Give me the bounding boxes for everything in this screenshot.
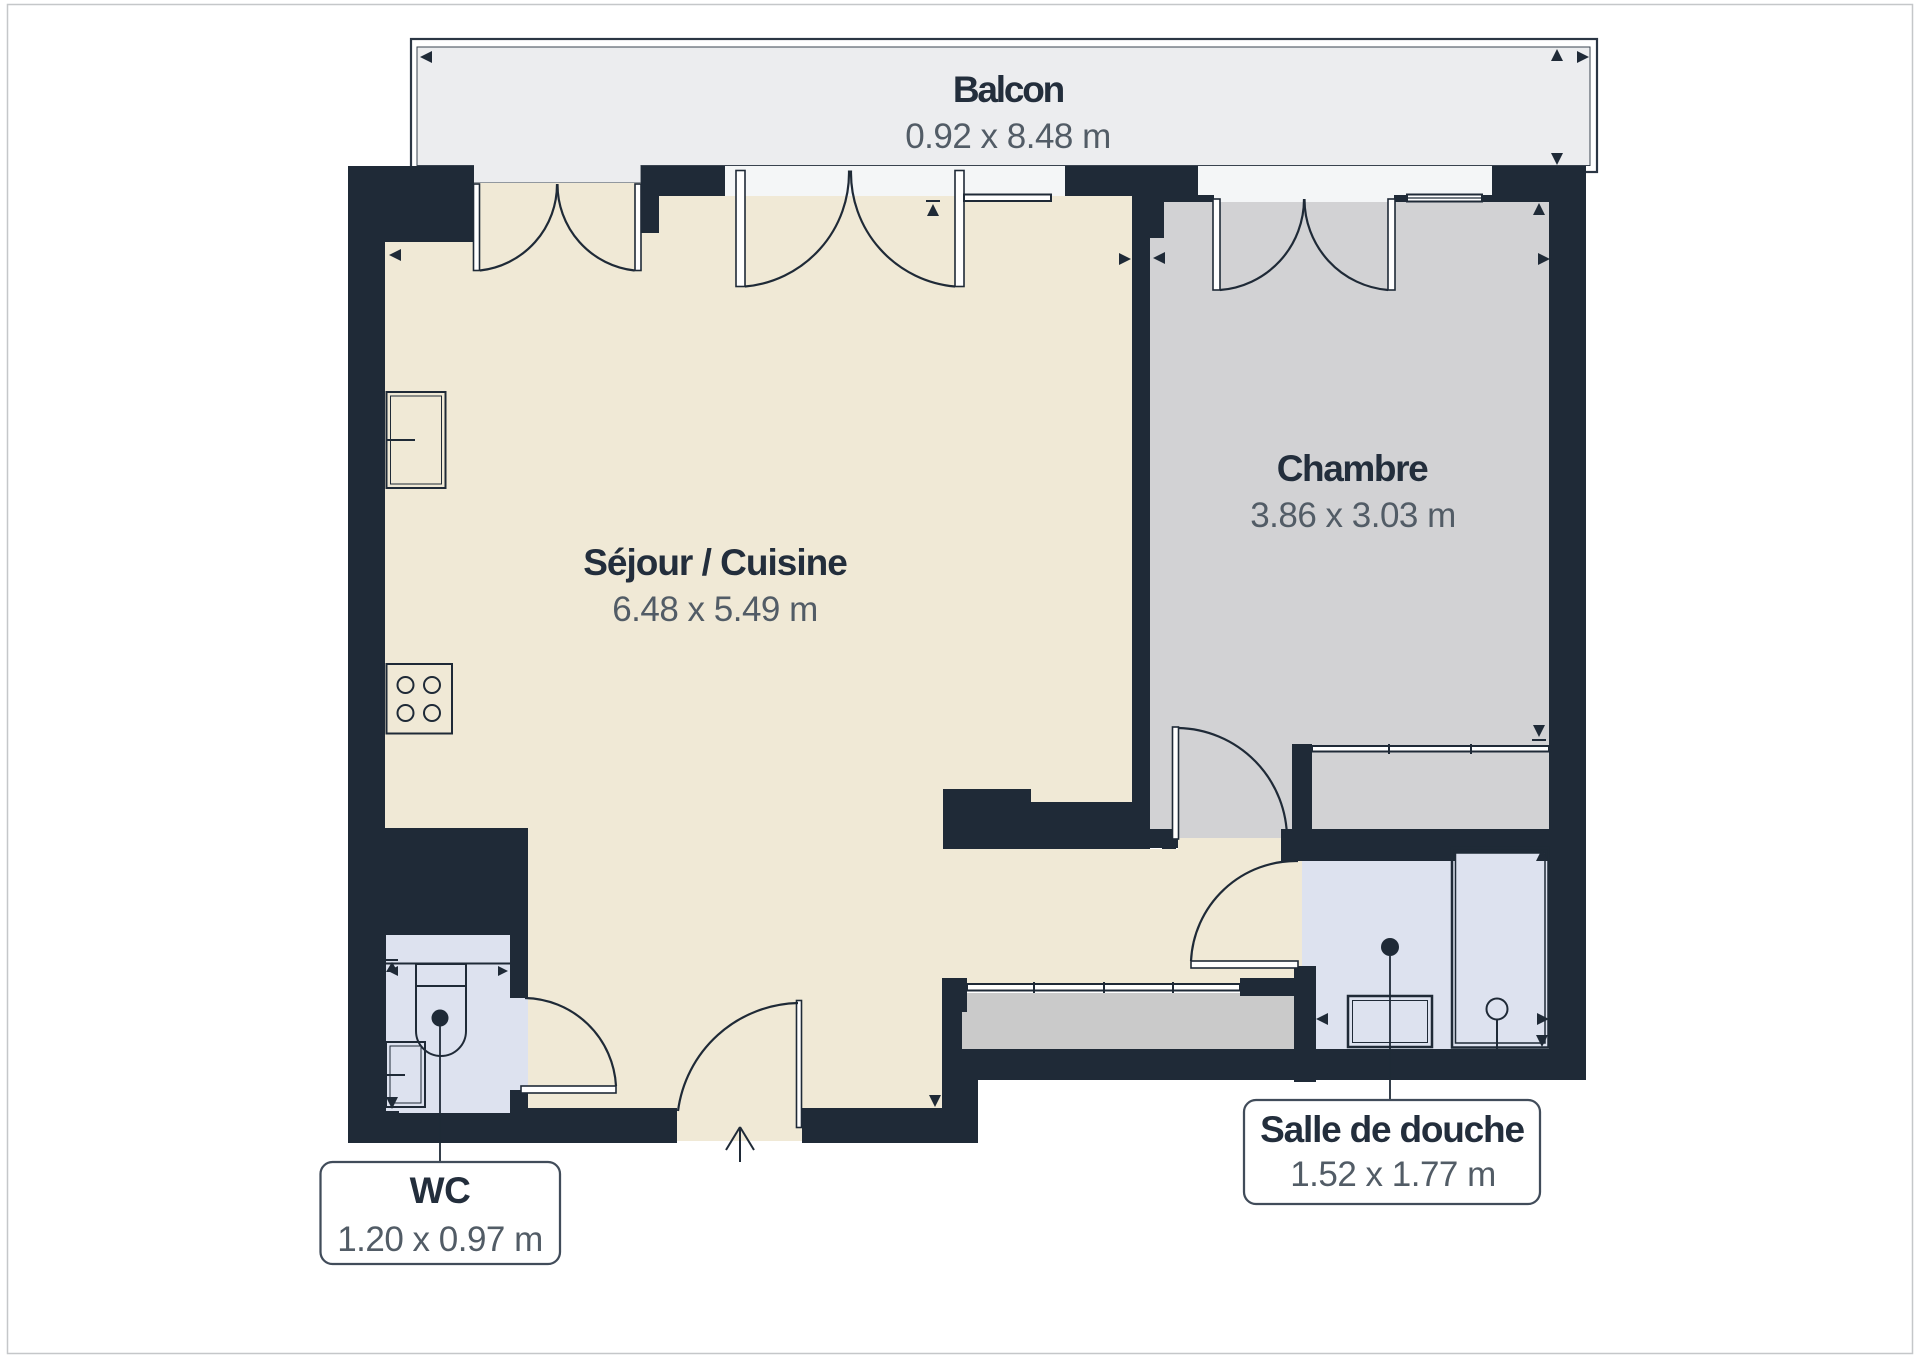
svg-text:Salle de douche: Salle de douche xyxy=(1260,1109,1524,1150)
svg-text:Balcon: Balcon xyxy=(953,69,1064,110)
svg-text:0.92 x 8.48 m: 0.92 x 8.48 m xyxy=(905,117,1111,156)
svg-text:WC: WC xyxy=(410,1170,471,1211)
svg-text:6.48 x 5.49 m: 6.48 x 5.49 m xyxy=(612,590,818,629)
svg-text:1.20 x 0.97 m: 1.20 x 0.97 m xyxy=(337,1220,543,1259)
svg-text:Chambre: Chambre xyxy=(1277,448,1428,489)
svg-text:Séjour / Cuisine: Séjour / Cuisine xyxy=(583,542,847,583)
svg-text:1.52 x 1.77 m: 1.52 x 1.77 m xyxy=(1290,1155,1496,1194)
svg-text:3.86 x 3.03 m: 3.86 x 3.03 m xyxy=(1250,496,1456,535)
